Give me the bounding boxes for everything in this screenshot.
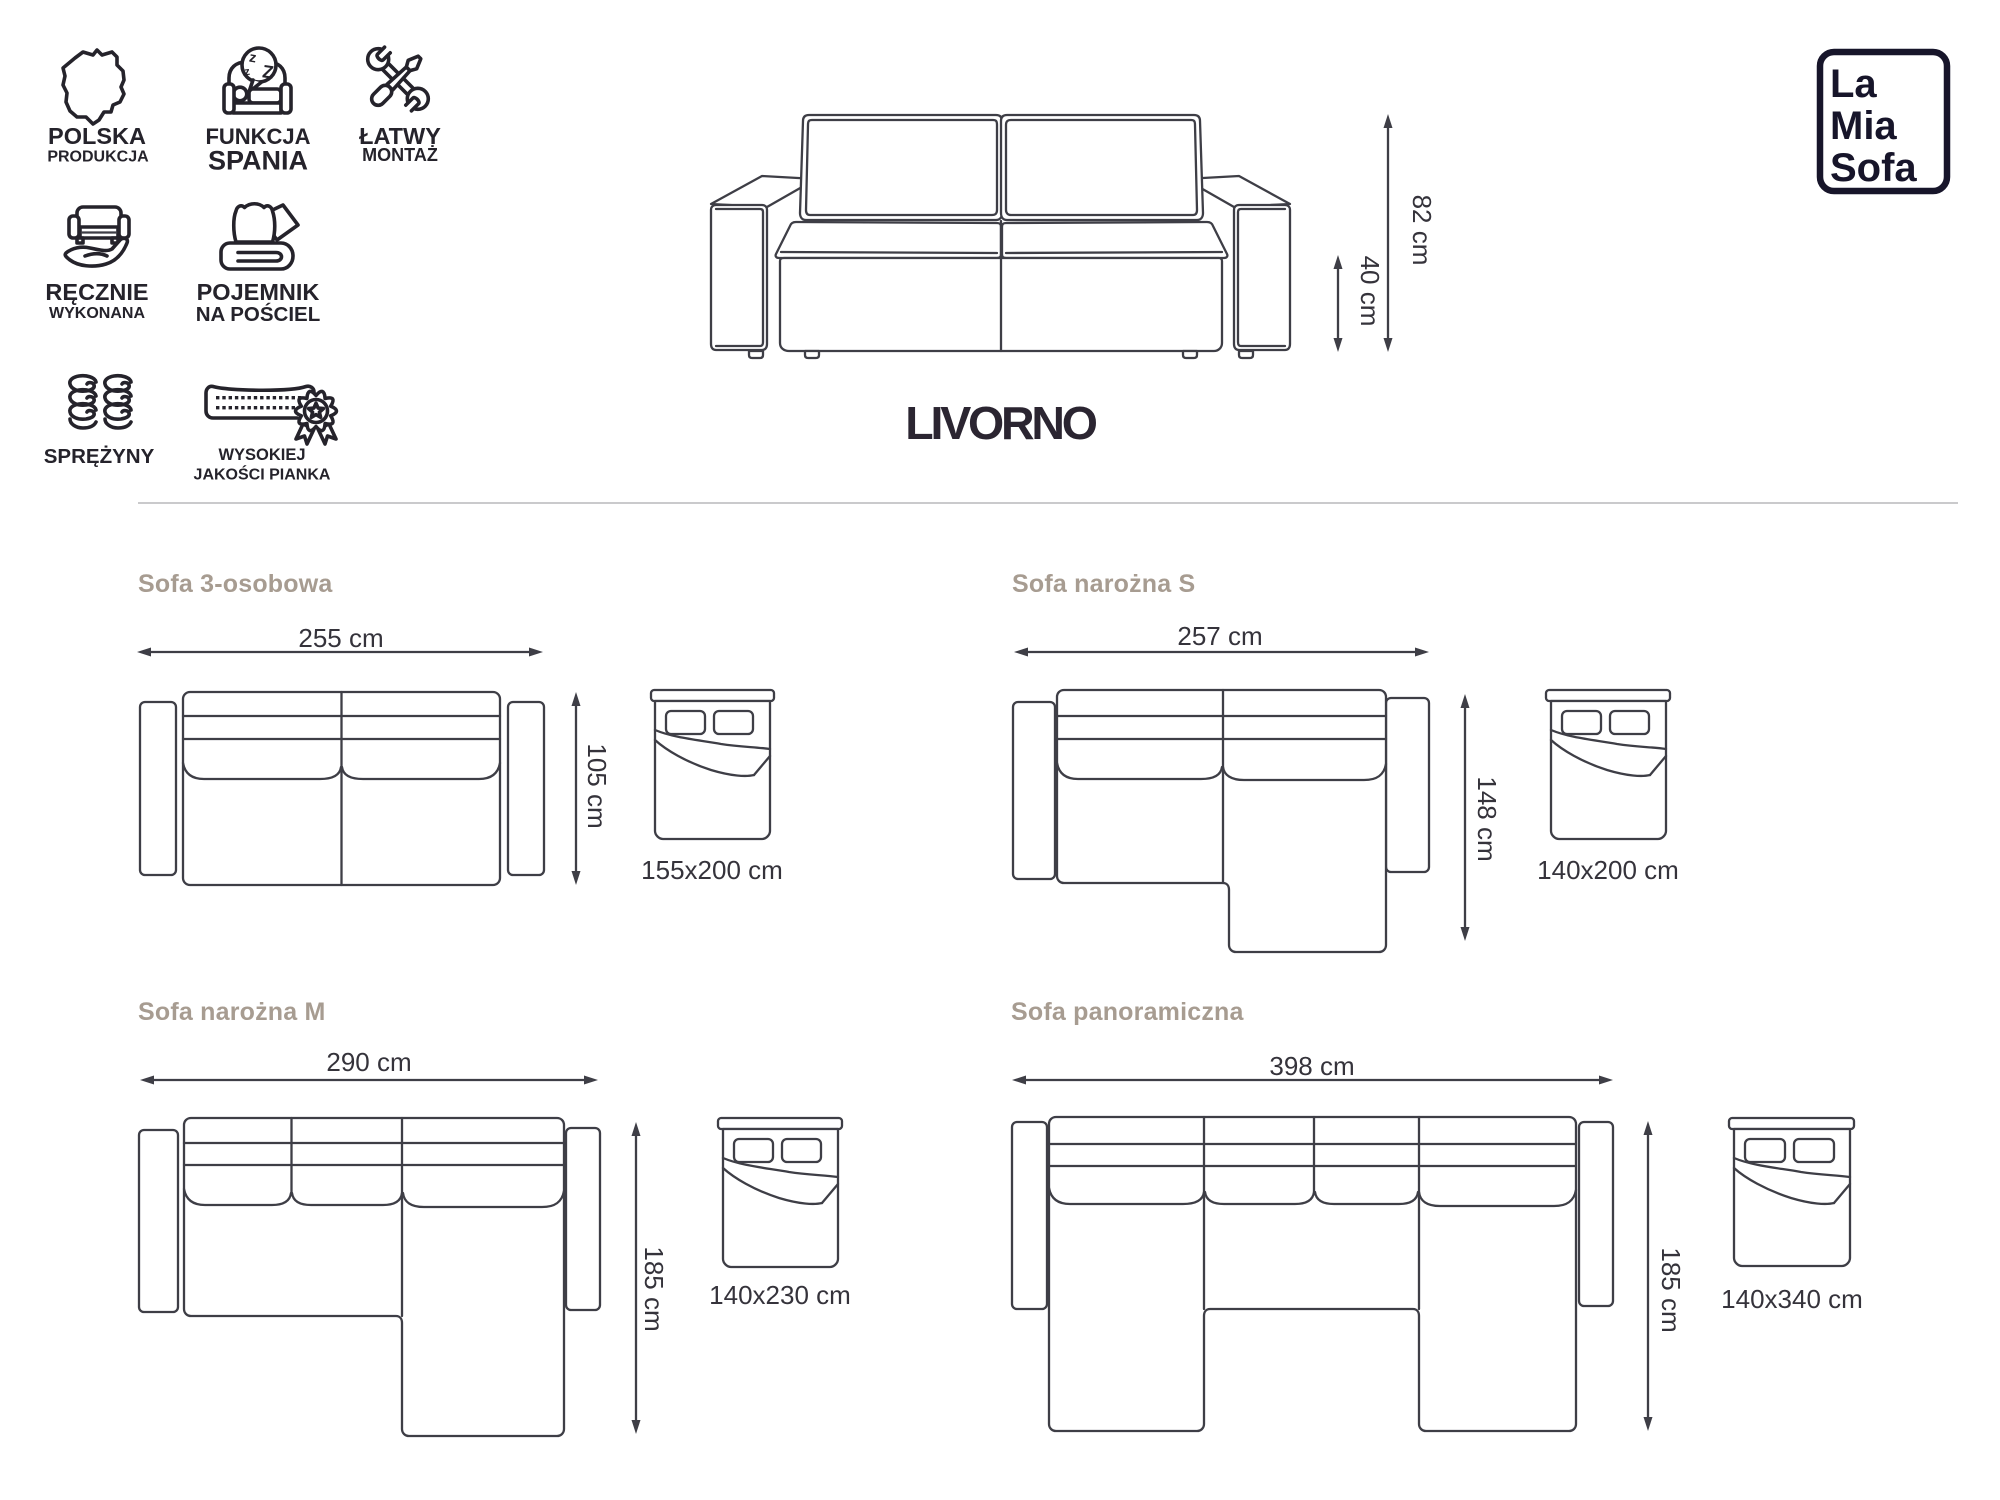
svg-text:JAKOŚCI PIANKA: JAKOŚCI PIANKA — [194, 465, 331, 484]
svg-text:Sofa: Sofa — [1830, 146, 1917, 190]
svg-text:WYSOKIEJ: WYSOKIEJ — [218, 446, 305, 464]
svg-text:Mia: Mia — [1830, 104, 1897, 148]
svg-text:La: La — [1830, 62, 1877, 106]
svg-text:PRODUKCJA: PRODUKCJA — [47, 149, 149, 166]
svg-text:40 cm: 40 cm — [1355, 256, 1385, 327]
svg-text:POLSKA: POLSKA — [48, 123, 146, 149]
svg-text:255 cm: 255 cm — [298, 623, 383, 653]
svg-text:140x340 cm: 140x340 cm — [1721, 1284, 1863, 1314]
svg-text:LIVORNO: LIVORNO — [905, 397, 1096, 449]
svg-text:SPRĘŻYNY: SPRĘŻYNY — [44, 445, 155, 468]
svg-text:MONTAŻ: MONTAŻ — [362, 145, 438, 165]
svg-text:105 cm: 105 cm — [582, 743, 612, 828]
svg-text:WYKONANA: WYKONANA — [49, 305, 145, 322]
svg-text:155x200 cm: 155x200 cm — [641, 855, 783, 885]
svg-text:290 cm: 290 cm — [326, 1047, 411, 1077]
svg-text:RĘCZNIE: RĘCZNIE — [45, 279, 148, 305]
svg-text:140x230 cm: 140x230 cm — [709, 1280, 851, 1310]
svg-text:185 cm: 185 cm — [639, 1246, 669, 1331]
svg-text:NA POŚCIEL: NA POŚCIEL — [196, 302, 321, 326]
svg-text:Sofa narożna M: Sofa narożna M — [138, 998, 326, 1026]
svg-text:82 cm: 82 cm — [1407, 195, 1437, 266]
svg-text:Sofa panoramiczna: Sofa panoramiczna — [1011, 998, 1245, 1026]
svg-text:SPANIA: SPANIA — [208, 146, 308, 176]
svg-text:Sofa narożna S: Sofa narożna S — [1012, 570, 1195, 598]
svg-text:Sofa 3-osobowa: Sofa 3-osobowa — [138, 570, 333, 598]
svg-text:398 cm: 398 cm — [1269, 1051, 1354, 1081]
svg-text:POJEMNIK: POJEMNIK — [197, 279, 320, 305]
svg-text:257 cm: 257 cm — [1177, 621, 1262, 651]
svg-text:185 cm: 185 cm — [1656, 1247, 1686, 1332]
svg-text:140x200 cm: 140x200 cm — [1537, 855, 1679, 885]
svg-text:148 cm: 148 cm — [1472, 776, 1502, 861]
